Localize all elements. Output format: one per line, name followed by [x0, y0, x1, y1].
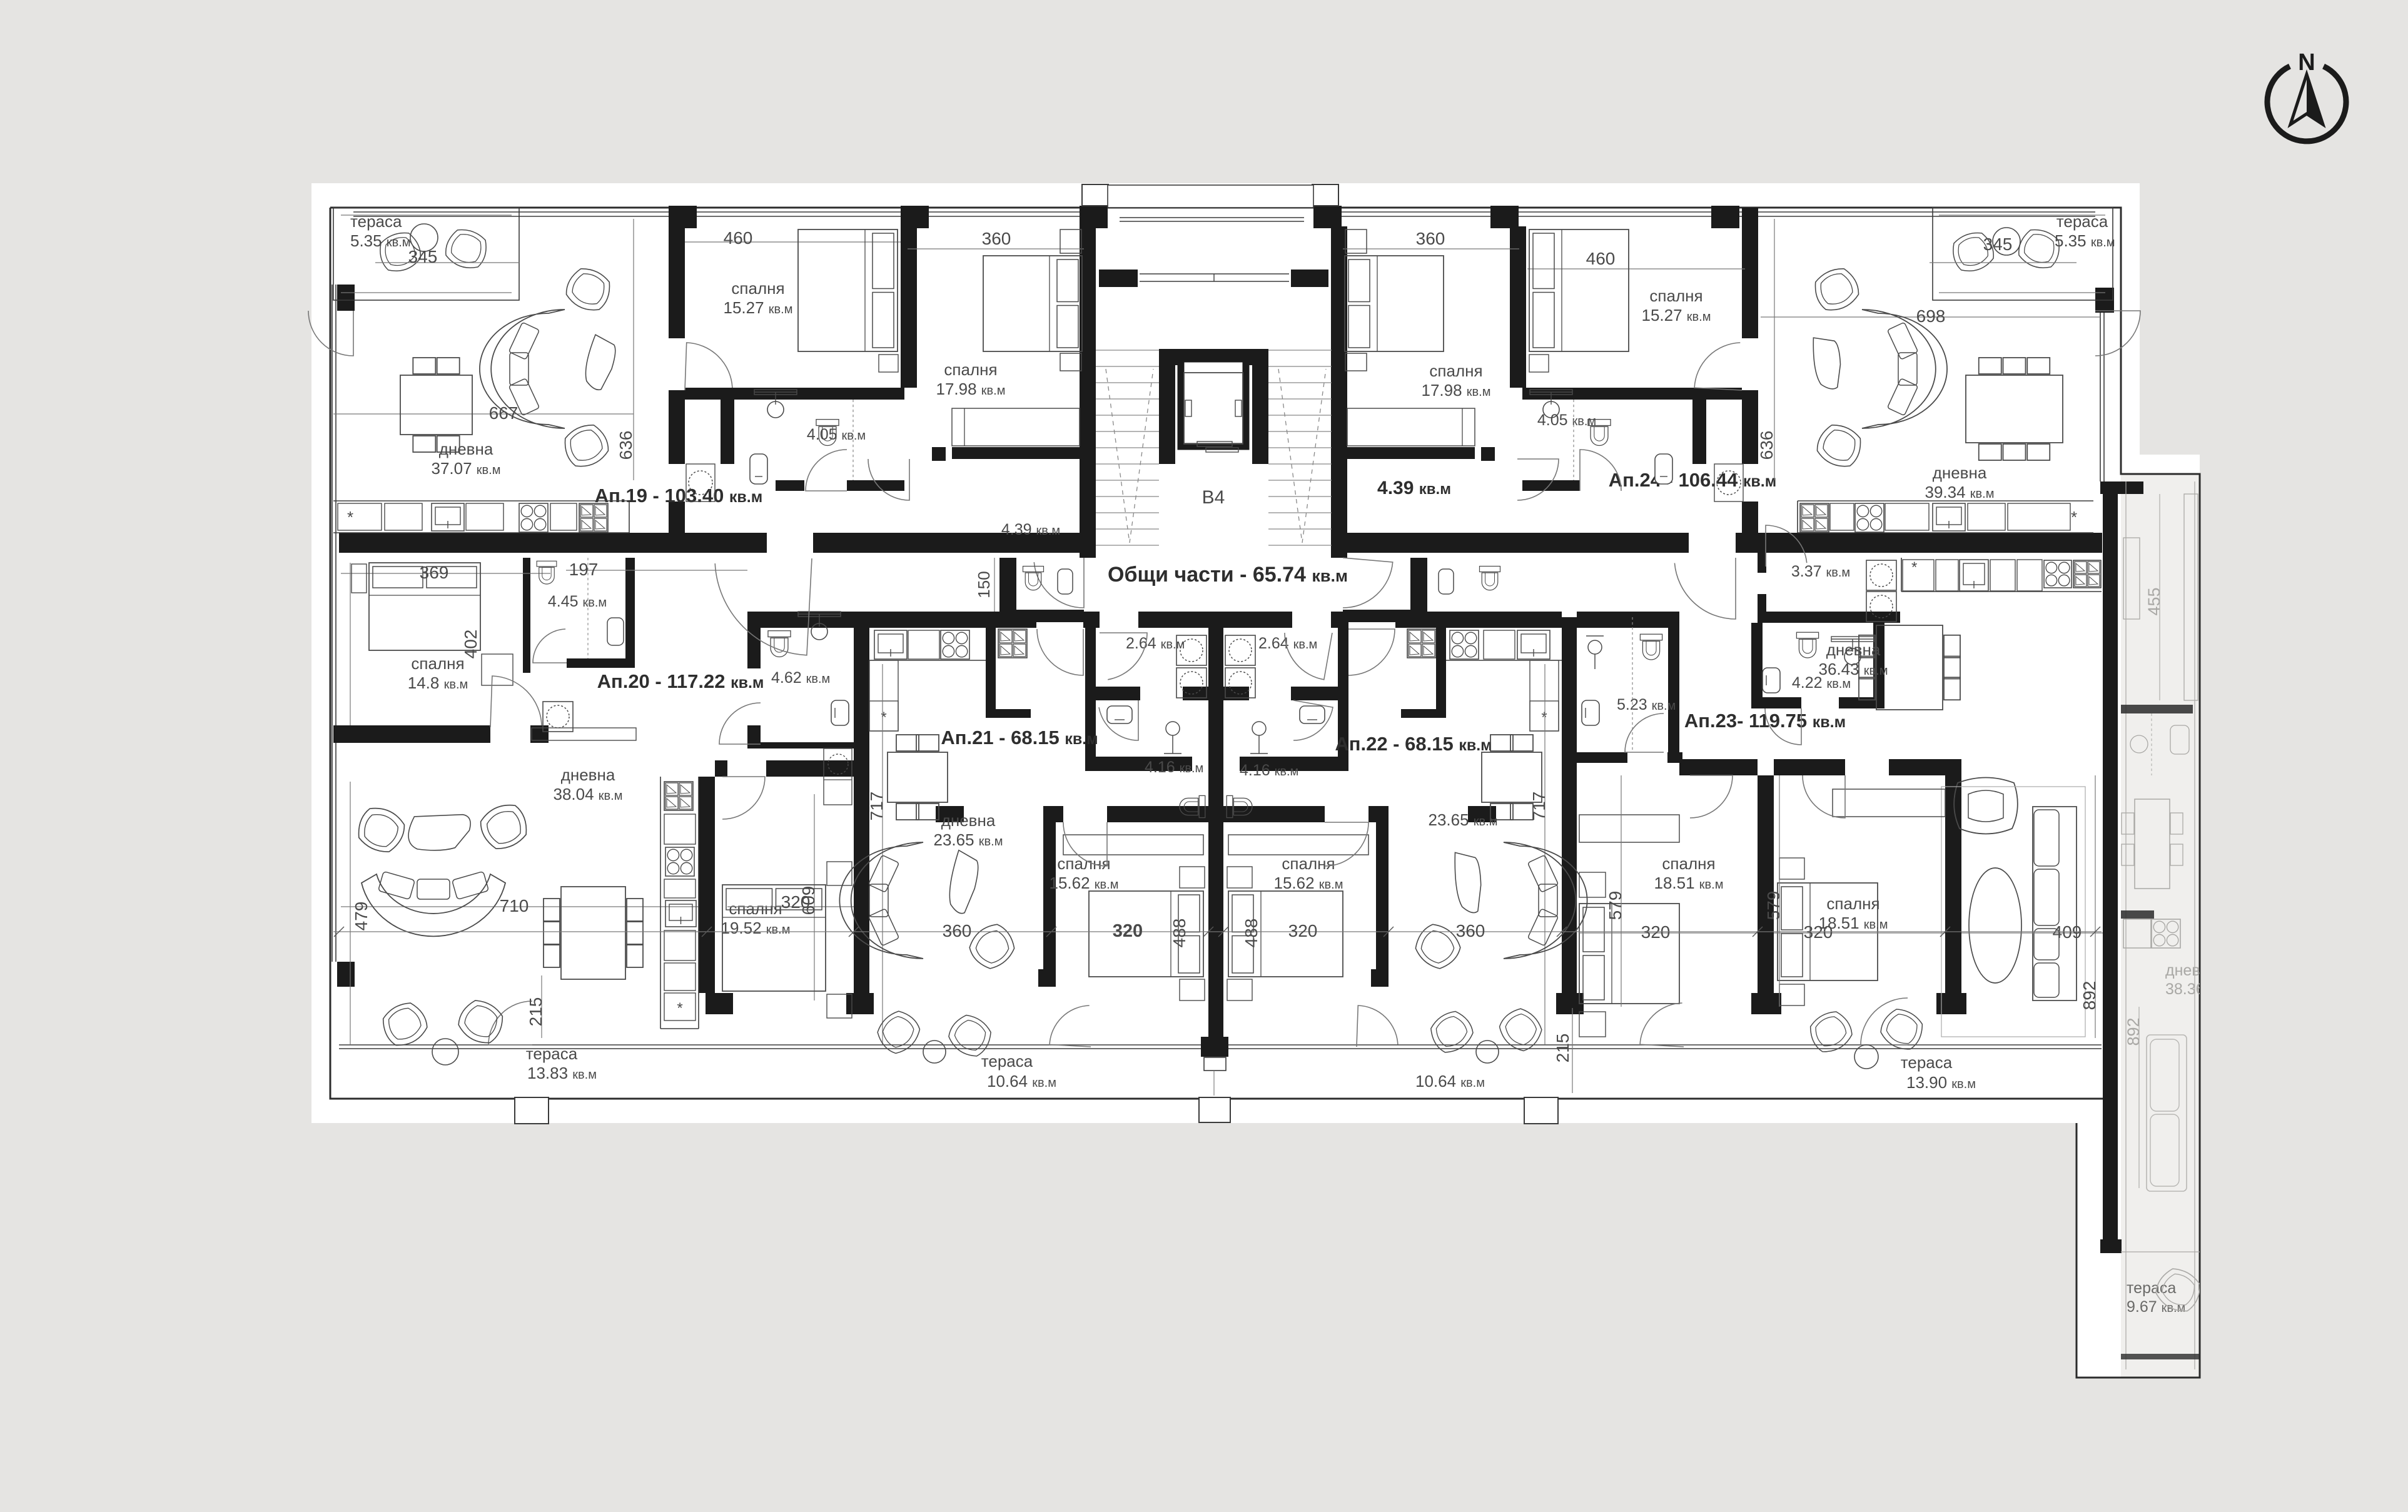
svg-text:тераса: тераса: [526, 1044, 578, 1063]
svg-text:579: 579: [1764, 891, 1783, 920]
svg-text:*: *: [1911, 559, 1917, 576]
svg-text:*: *: [677, 1000, 682, 1017]
svg-text:5.23 кв.м: 5.23 кв.м: [1617, 696, 1676, 713]
svg-text:710: 710: [500, 896, 529, 915]
svg-text:спалня: спалня: [411, 654, 464, 673]
svg-text:тераса: тераса: [2127, 1279, 2176, 1297]
svg-text:Ап.24 - 106.44 кв.м: Ап.24 - 106.44 кв.м: [1609, 469, 1777, 491]
svg-text:дневна: дневна: [941, 811, 996, 830]
svg-text:4.62 кв.м: 4.62 кв.м: [771, 669, 830, 687]
svg-text:360: 360: [943, 921, 972, 940]
svg-text:488: 488: [1170, 919, 1189, 948]
svg-text:717: 717: [1529, 792, 1549, 821]
svg-text:4.39 кв.м: 4.39 кв.м: [1001, 521, 1060, 538]
svg-text:345: 345: [408, 247, 438, 266]
svg-text:тераса: тераса: [981, 1052, 1033, 1071]
svg-text:4.45 кв.м: 4.45 кв.м: [548, 593, 607, 610]
svg-text:спалня: спалня: [729, 899, 782, 918]
svg-text:спалня: спалня: [1662, 854, 1715, 873]
svg-text:4.05 кв.м: 4.05 кв.м: [1537, 411, 1596, 429]
svg-text:спалня: спалня: [1429, 361, 1482, 380]
svg-text:636: 636: [1757, 431, 1776, 460]
svg-text:спалня: спалня: [1282, 854, 1335, 873]
svg-text:тераса: тераса: [1901, 1053, 1953, 1072]
svg-text:тераса: тераса: [2056, 212, 2108, 231]
svg-text:*: *: [881, 709, 886, 726]
svg-text:9.67 кв.м: 9.67 кв.м: [2127, 1298, 2185, 1316]
svg-text:667: 667: [489, 403, 519, 423]
svg-text:402: 402: [461, 630, 480, 659]
svg-text:460: 460: [724, 228, 753, 248]
svg-text:4.16 кв.м: 4.16 кв.м: [1240, 762, 1298, 779]
svg-text:дневна: дневна: [439, 440, 493, 458]
svg-text:*: *: [347, 508, 353, 527]
svg-text:215: 215: [1553, 1034, 1572, 1063]
svg-text:345: 345: [1983, 234, 2013, 254]
svg-text:479: 479: [352, 902, 371, 931]
svg-text:4.39 кв.м: 4.39 кв.м: [1377, 478, 1451, 498]
svg-text:N: N: [2298, 49, 2315, 76]
svg-text:636: 636: [616, 431, 635, 460]
svg-text:455: 455: [2145, 587, 2163, 615]
svg-text:197: 197: [569, 560, 599, 579]
svg-text:спалня: спалня: [1057, 854, 1110, 873]
svg-text:Ап.22 - 68.15 кв.м: Ап.22 - 68.15 кв.м: [1335, 733, 1492, 755]
svg-text:дневна: дневна: [1933, 463, 1987, 482]
svg-text:спалня: спалня: [1649, 286, 1702, 305]
svg-text:360: 360: [982, 229, 1011, 248]
svg-text:460: 460: [1586, 249, 1616, 268]
svg-text:*: *: [1541, 709, 1547, 726]
svg-text:4.16 кв.м: 4.16 кв.м: [1145, 759, 1203, 776]
svg-text:360: 360: [1416, 229, 1445, 248]
svg-text:спалня: спалня: [731, 279, 784, 298]
svg-text:150: 150: [974, 571, 993, 598]
svg-text:2.64 кв.м: 2.64 кв.м: [1126, 635, 1185, 652]
svg-text:579: 579: [1606, 891, 1625, 920]
svg-text:Ап.21 - 68.15 кв.м: Ап.21 - 68.15 кв.м: [941, 727, 1098, 748]
svg-text:892: 892: [2080, 981, 2099, 1011]
svg-text:тераса: тераса: [350, 212, 402, 231]
svg-text:*: *: [2071, 508, 2077, 527]
svg-text:215: 215: [526, 997, 545, 1027]
svg-text:609: 609: [799, 886, 818, 915]
svg-text:320: 320: [1113, 921, 1143, 941]
svg-text:360: 360: [1456, 921, 1485, 940]
svg-text:спалня: спалня: [944, 360, 997, 379]
svg-text:Ап.20 - 117.22 кв.м: Ап.20 - 117.22 кв.м: [597, 670, 764, 692]
svg-text:Общи части - 65.74 кв.м: Общи части - 65.74 кв.м: [1108, 563, 1348, 587]
svg-text:369: 369: [420, 563, 449, 582]
svg-text:38.36: 38.36: [2165, 980, 2205, 998]
svg-text:дневна: дневна: [561, 765, 615, 784]
svg-text:717: 717: [867, 792, 886, 821]
svg-text:спалня: спалня: [1826, 894, 1879, 913]
svg-text:892: 892: [2124, 1017, 2143, 1046]
svg-text:320: 320: [1288, 921, 1318, 940]
svg-text:3.37 кв.м: 3.37 кв.м: [1791, 563, 1850, 580]
svg-text:B4: B4: [1202, 487, 1225, 508]
svg-text:488: 488: [1242, 919, 1261, 948]
svg-text:Ап.19 - 103.40 кв.м: Ап.19 - 103.40 кв.м: [595, 485, 763, 507]
svg-text:698: 698: [1916, 306, 1946, 326]
